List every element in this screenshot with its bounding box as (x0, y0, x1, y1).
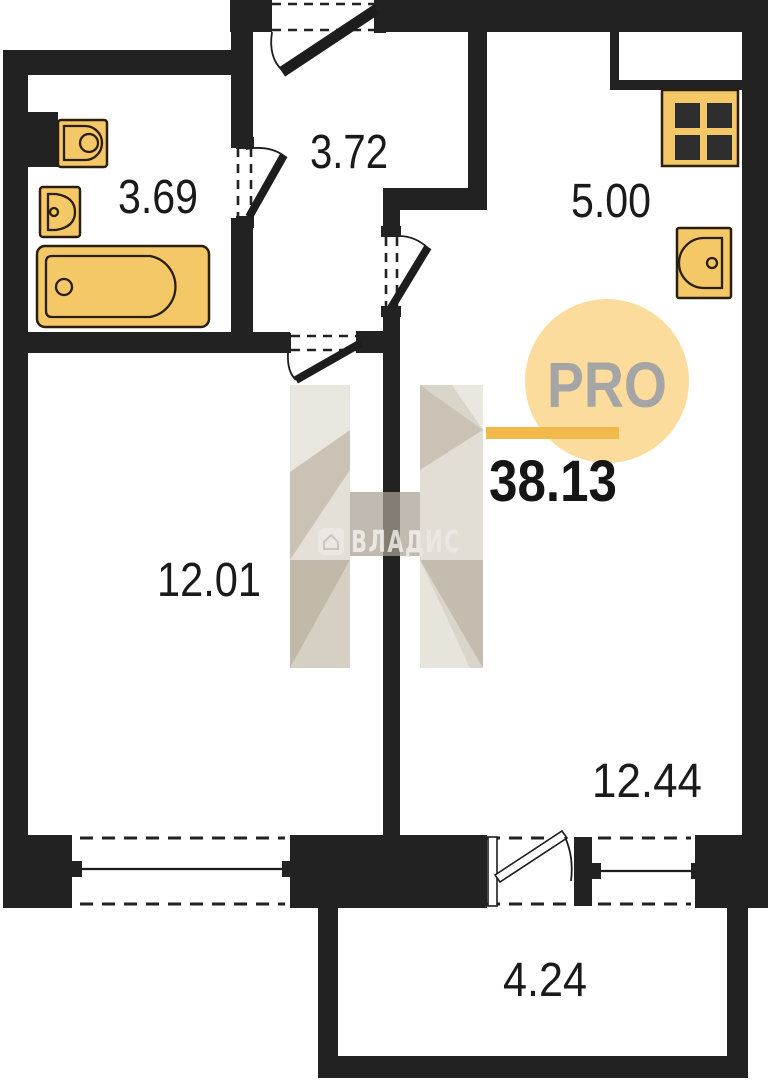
stove-burner (675, 103, 700, 128)
wall-segment (383, 188, 487, 210)
window-jamb (691, 863, 702, 879)
wall-segment (356, 331, 400, 353)
window-jamb (282, 861, 293, 877)
window-jamb (71, 861, 82, 877)
wall-segment (574, 837, 592, 906)
wall-segment (3, 50, 28, 908)
stove-burner (707, 135, 732, 160)
door-jamb (258, 2, 272, 30)
house-icon (318, 528, 344, 555)
balcony-area-label: 4.24 (503, 954, 587, 1007)
balcony-wall (318, 1056, 748, 1078)
bathtub (37, 246, 209, 327)
watermark-brand: ВЛАДИС (318, 525, 461, 560)
door-jamb (278, 333, 291, 353)
living-room-area-label: 12.44 (592, 755, 702, 808)
wall-segment (231, 218, 253, 334)
wall-segment (3, 835, 72, 908)
floor-plan-drawing: ВЛАДИС 3.69 3.72 5.00 12.01 12.44 4.24 P… (0, 0, 774, 1080)
door-jamb (381, 226, 401, 237)
duct-pillar (28, 112, 58, 167)
total-area-label: 38.13 (489, 449, 617, 514)
window-jamb (590, 863, 601, 879)
logo-underline-bar (486, 427, 619, 439)
wall-segment (742, 0, 768, 908)
bathroom-area-label: 3.69 (118, 171, 198, 224)
wall-segment (374, 0, 768, 32)
wall-segment (695, 835, 768, 908)
wall-segment (3, 50, 250, 75)
stove-burner (707, 103, 732, 128)
wall-segment (383, 306, 400, 837)
wall-segment (610, 80, 742, 90)
hallway-area-label: 3.72 (310, 126, 388, 179)
balcony-wall (318, 907, 338, 1078)
room-area-label: 12.01 (157, 554, 261, 607)
wall-segment (290, 835, 487, 908)
wall-segment (468, 32, 487, 210)
wall-segment (3, 332, 290, 353)
door-jamb (236, 137, 254, 149)
watermark-brand-text: ВЛАДИС (351, 525, 461, 560)
floor-plan-page: ВЛАДИС 3.69 3.72 5.00 12.01 12.44 4.24 P… (0, 0, 774, 1080)
balcony-wall (727, 907, 748, 1078)
kitchen-area-label: 5.00 (571, 175, 651, 228)
stove-burner (675, 135, 700, 160)
balcony-door-frame (488, 837, 497, 906)
logo-text: PRO (547, 349, 667, 421)
